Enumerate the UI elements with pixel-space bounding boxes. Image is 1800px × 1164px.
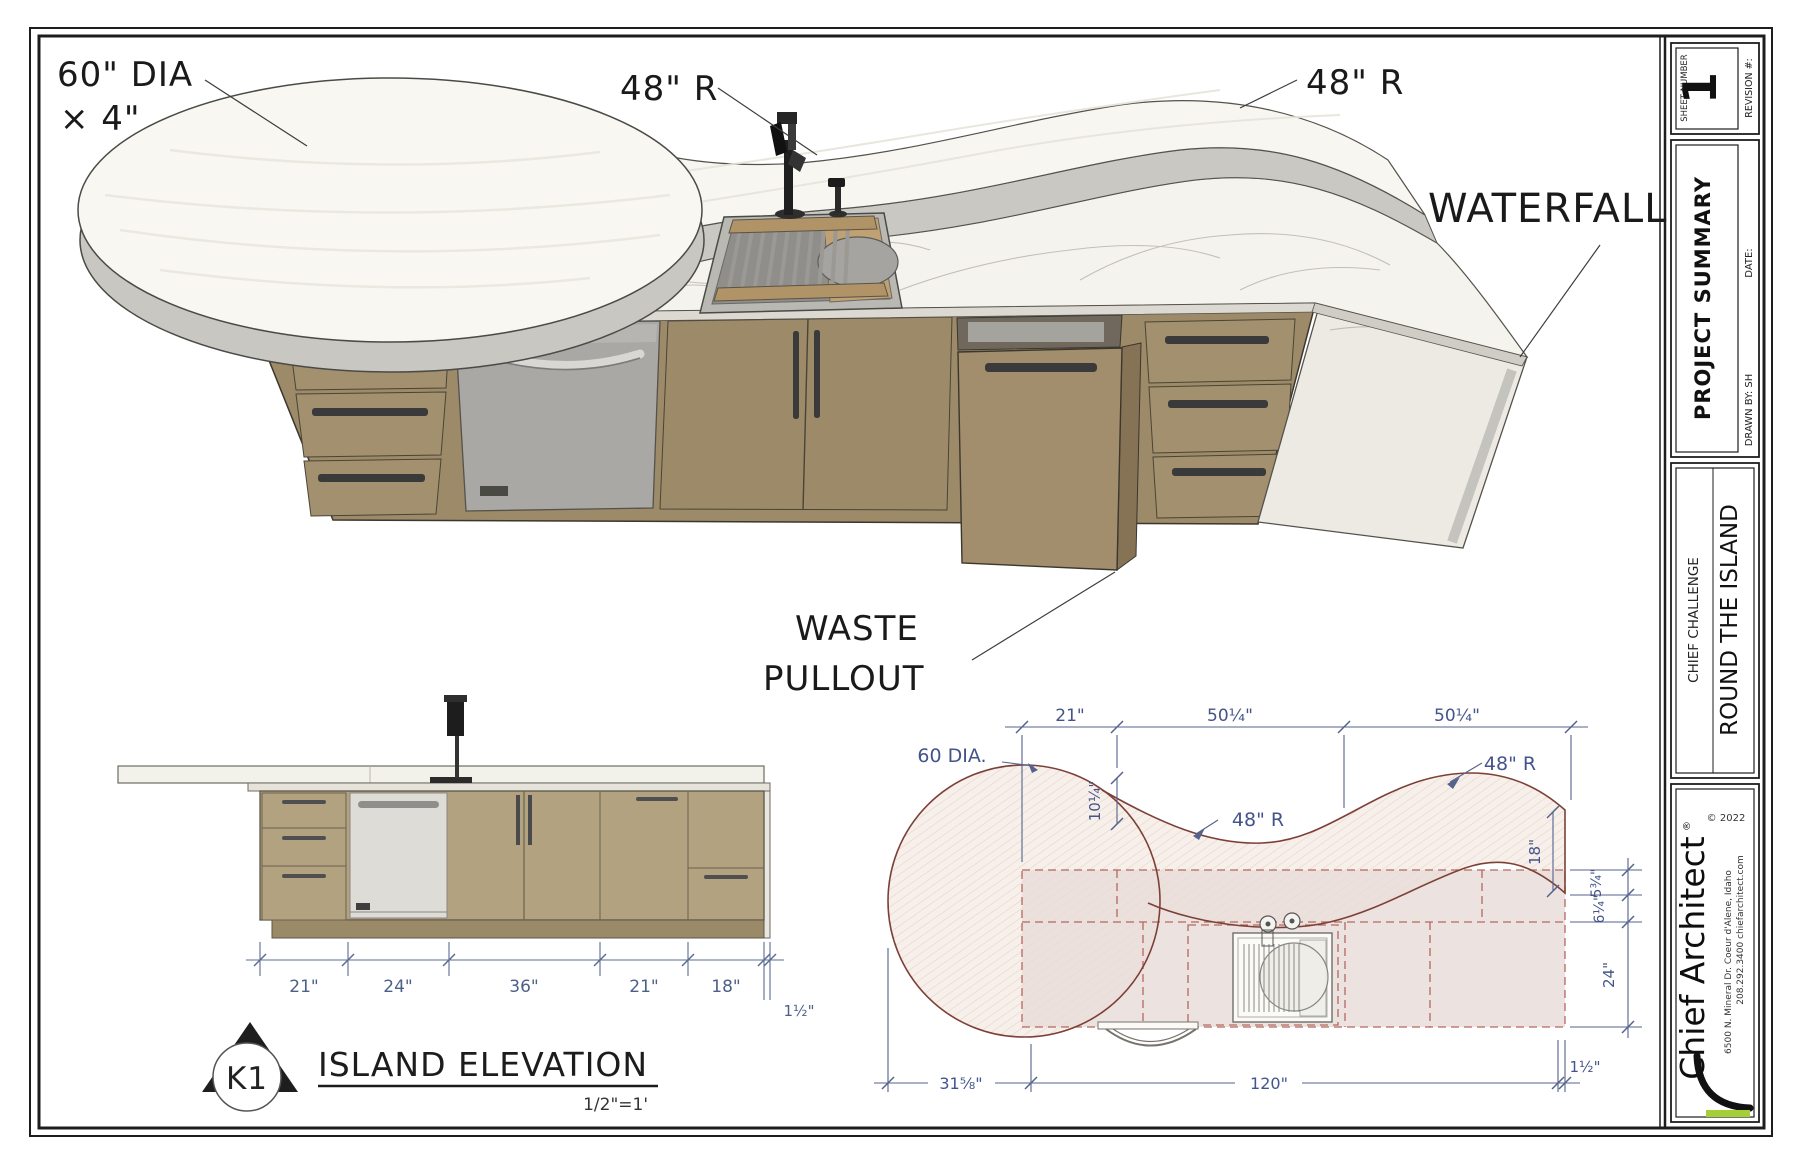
elev-dim-18: 18": [711, 977, 740, 997]
logo-box: © 2022 Chief Architect ® 6500 N. Mineral…: [1671, 784, 1759, 1122]
label-x4: × 4": [60, 99, 141, 139]
sheet-number-box: SHEET NUMBER 1 REVISION #:: [1671, 43, 1759, 134]
brand-address: 6500 N. Mineral Dr. Coeur d'Alene, Idaho: [1724, 870, 1734, 1054]
plan-label-60dia: 60 DIA.: [917, 745, 986, 767]
counter-elev: [248, 783, 770, 791]
elev-dim-21a: 21": [289, 977, 318, 997]
elevation-scale: 1/2"=1': [583, 1095, 648, 1115]
drawn-by-label: DRAWN BY: SH: [1744, 374, 1755, 447]
label-waste: WASTE: [795, 609, 919, 649]
date-label: DATE:: [1744, 248, 1755, 277]
plan-dim-21: 21": [1055, 706, 1084, 726]
sheet-svg: 60" DIA × 4" 48" R 48" R WATERFALL WASTE…: [0, 0, 1800, 1164]
challenge-label: CHIEF CHALLENGE: [1686, 557, 1702, 683]
plan-dim-18: 18": [1526, 839, 1544, 865]
round-top-3d: [78, 78, 704, 372]
label-48r-right: 48" R: [1306, 63, 1404, 103]
waste-pullout-3d: [957, 315, 1141, 570]
plan-dim-5: 5¾": [1589, 869, 1605, 898]
drawer-stack-elev: [262, 793, 346, 920]
toe-kick-elev: [272, 920, 764, 938]
plan-dim-24: 24": [1600, 962, 1618, 988]
revision-label: REVISION #:: [1744, 58, 1755, 118]
brand-name: Chief Architect: [1673, 836, 1712, 1080]
project-name-box: CHIEF CHALLENGE ROUND THE ISLAND: [1671, 463, 1759, 778]
plan-dim-50a: 50¼": [1207, 706, 1253, 726]
brand-reg-mark: ®: [1682, 821, 1693, 831]
label-waterfall: WATERFALL: [1428, 186, 1667, 232]
island-3d-view: 60" DIA × 4" 48" R 48" R WATERFALL WASTE…: [57, 55, 1667, 699]
dishwasher-handle-plan: [1098, 1022, 1198, 1046]
label-60-dia: 60" DIA: [57, 55, 193, 95]
elev-dim-21b: 21": [629, 977, 658, 997]
island-elevation-view: 21" 24" 36" 21" 18" 1½" K1 ISLAND ELEVAT…: [118, 695, 814, 1115]
label-pullout: PULLOUT: [763, 659, 924, 699]
copyright-label: © 2022: [1707, 813, 1746, 824]
project-summary-title: PROJECT SUMMARY: [1691, 176, 1715, 420]
plan-dim-31: 31⅝": [939, 1074, 982, 1093]
plan-label-48r-2: 48" R: [1484, 753, 1536, 775]
plan-dim-50b: 50¼": [1434, 706, 1480, 726]
sheet-number-value: 1: [1673, 72, 1727, 104]
waterfall-elev: [764, 791, 770, 938]
project-summary-box: PROJECT SUMMARY DATE: DRAWN BY: SH: [1671, 140, 1759, 457]
callout-k1: K1: [226, 1061, 268, 1097]
elev-dim-24: 24": [383, 977, 412, 997]
sink-3d: [700, 213, 902, 313]
elev-dim-overhang: 1½": [784, 1002, 815, 1020]
elevation-title: ISLAND ELEVATION: [318, 1045, 648, 1084]
title-block: SHEET NUMBER 1 REVISION #: PROJECT SUMMA…: [1671, 43, 1759, 1122]
plan-label-48r-1: 48" R: [1232, 809, 1284, 831]
plan-dim-120: 120": [1250, 1074, 1288, 1093]
project-name-label: ROUND THE ISLAND: [1717, 504, 1743, 736]
brand-contact: 208.292.3400 chiefarchitect.com: [1736, 855, 1746, 1005]
plan-dim-10: 10¼": [1086, 781, 1104, 822]
elevation-callout: K1: [202, 1022, 298, 1111]
label-48r-left: 48" R: [620, 69, 718, 109]
dishwasher-logo: [480, 486, 508, 496]
island-plan-view: 21" 50¼" 50¼" 60 DIA. 48" R 48" R 10¼" 1…: [874, 706, 1642, 1093]
sink-bowl-3d: [818, 237, 898, 287]
plan-dim-6: 6¼": [1592, 895, 1608, 924]
plan-dim-1half: 1½": [1570, 1058, 1601, 1076]
drawing-sheet: 60" DIA × 4" 48" R 48" R WATERFALL WASTE…: [0, 0, 1800, 1164]
dishwasher-elev: [350, 793, 447, 918]
elev-dim-36: 36": [509, 977, 538, 997]
double-door-cabinet-3d: [660, 317, 952, 510]
